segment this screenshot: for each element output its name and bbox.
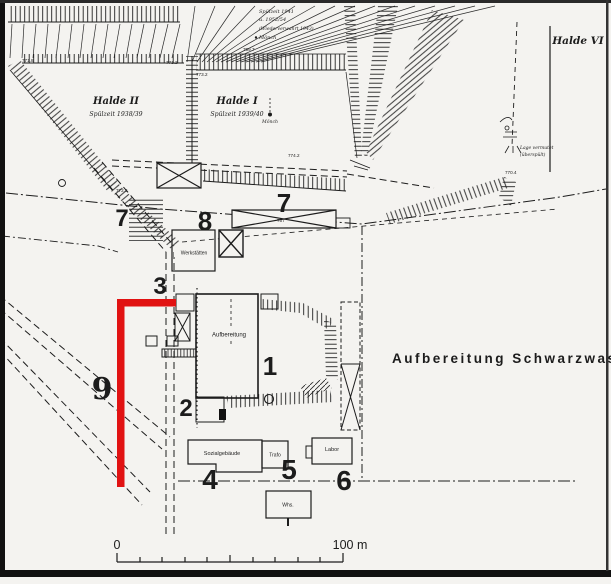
halde1-name: Halde I [215, 96, 258, 107]
halde6-label: Halde VI [551, 35, 605, 47]
halde2-period: Spülzeit 1938/39 [89, 111, 142, 118]
moench-symbol-halde6 [500, 117, 521, 153]
halde-dam-hachure-bands [8, 6, 516, 408]
note-line-4: Mönch [258, 35, 276, 41]
elevation: 774.2 [288, 153, 300, 158]
red-marker-line: 9 [92, 299, 176, 487]
marker-7-center: 7 [277, 188, 291, 218]
whs-building: Whs. [266, 491, 311, 526]
marker-2: 2 [179, 395, 192, 422]
elevation: 770.4 [505, 170, 517, 175]
scale-end: 100 m [333, 538, 368, 552]
moench-symbol-halde1 [268, 98, 271, 116]
marker-3: 3 [153, 273, 166, 300]
sozialgebaeude-building: Sozialgebäude [188, 440, 262, 472]
elevation: 773.2 [196, 72, 208, 77]
site-caption: Aufbereitung Schwarzwasser [392, 351, 611, 366]
werkstaetten-building: Werkstätten [172, 230, 215, 271]
halde1-period: Spülzeit 1939/40 [210, 111, 263, 118]
halde2-name: Halde II [92, 96, 139, 107]
marker-8: 8 [198, 206, 212, 236]
elevation: 771.2 [166, 60, 178, 65]
trafo-label: Trafo [269, 453, 281, 459]
labor-building: Labor [306, 438, 352, 464]
marker-1: 1 [263, 351, 277, 381]
note-line-3: (Wiederverwahrt 1943) [259, 25, 314, 32]
halde-6-area: Lage vermutet (überspült) Halde VI [500, 22, 605, 172]
halde6-note-line2: (überspült) [520, 151, 546, 158]
note-line-2: u. 1952/54 [259, 17, 286, 23]
moench-dot [255, 36, 257, 38]
elevation: 772.6 [116, 188, 128, 193]
werkstaetten-label: Werkstätten [181, 251, 208, 257]
scanned-site-plan: Lage vermutet (überspült) Halde VI Spülz… [0, 0, 611, 584]
halde6-note-line1: Lage vermutet [519, 145, 554, 151]
marker-5: 5 [281, 454, 297, 485]
marker-6: 6 [336, 465, 352, 496]
rail-siding-stripes [129, 197, 163, 241]
halde-labels: Halde II Spülzeit 1938/39 Halde I Spülze… [89, 96, 278, 125]
marker-9: 9 [92, 372, 113, 407]
marker-4: 4 [202, 464, 218, 495]
tall-crossed-building [341, 302, 360, 430]
elevation: 759.7 [243, 47, 255, 52]
crossed-structure-top [157, 163, 201, 188]
whs-label: Whs. [282, 503, 293, 509]
elevation: 757 [277, 218, 285, 223]
aufbereitung-label: Aufbereitung [212, 333, 246, 339]
moench-label: Mönch [261, 119, 278, 125]
note-line-1: Spülzeit 1941 [259, 9, 294, 15]
labor-label: Labor [325, 447, 339, 453]
site-plan-drawing: Lage vermutet (überspült) Halde VI Spülz… [0, 0, 611, 584]
marker-7-left: 7 [115, 205, 128, 232]
scale-start: 0 [114, 538, 121, 552]
elevation: 771.8 [22, 58, 34, 63]
scale-bar: 0 100 m [114, 538, 368, 562]
halde-2-fan-hachures [10, 24, 180, 58]
sozialgebaeude-label: Sozialgebäude [204, 451, 240, 457]
top-right-note: Spülzeit 1941 u. 1952/54 (Wiederverwahrt… [255, 9, 314, 41]
crossed-square-building [219, 230, 243, 257]
